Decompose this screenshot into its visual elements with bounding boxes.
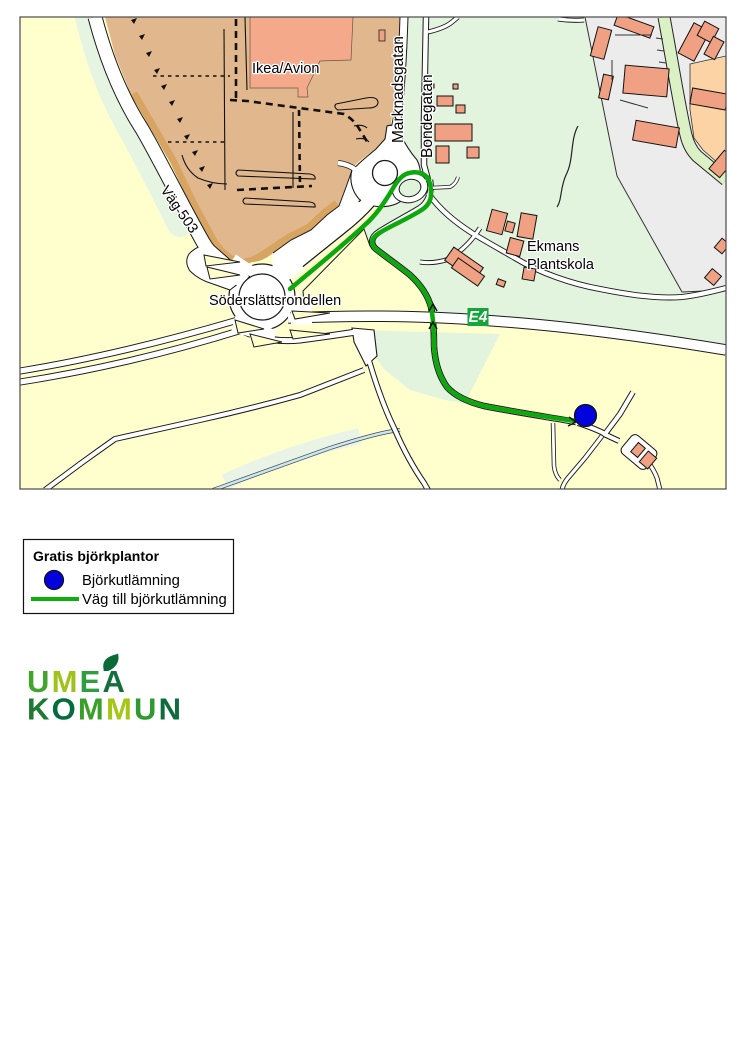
svg-text:E4: E4: [469, 309, 488, 326]
svg-text:Ekmans: Ekmans: [527, 239, 579, 255]
svg-text:Söderslättsrondellen: Söderslättsrondellen: [209, 293, 341, 309]
svg-text:Bondegatan: Bondegatan: [419, 74, 436, 158]
svg-text:Väg till björkutlämning: Väg till björkutlämning: [82, 592, 227, 608]
svg-text:Marknadsgatan: Marknadsgatan: [390, 36, 407, 143]
svg-text:Björkutlämning: Björkutlämning: [82, 573, 180, 589]
svg-text:Ikea/Avion: Ikea/Avion: [252, 61, 319, 77]
svg-text:KOMMUN: KOMMUN: [27, 692, 183, 727]
svg-text:Plantskola: Plantskola: [527, 257, 595, 273]
svg-text:Gratis björkplantor: Gratis björkplantor: [33, 548, 160, 564]
